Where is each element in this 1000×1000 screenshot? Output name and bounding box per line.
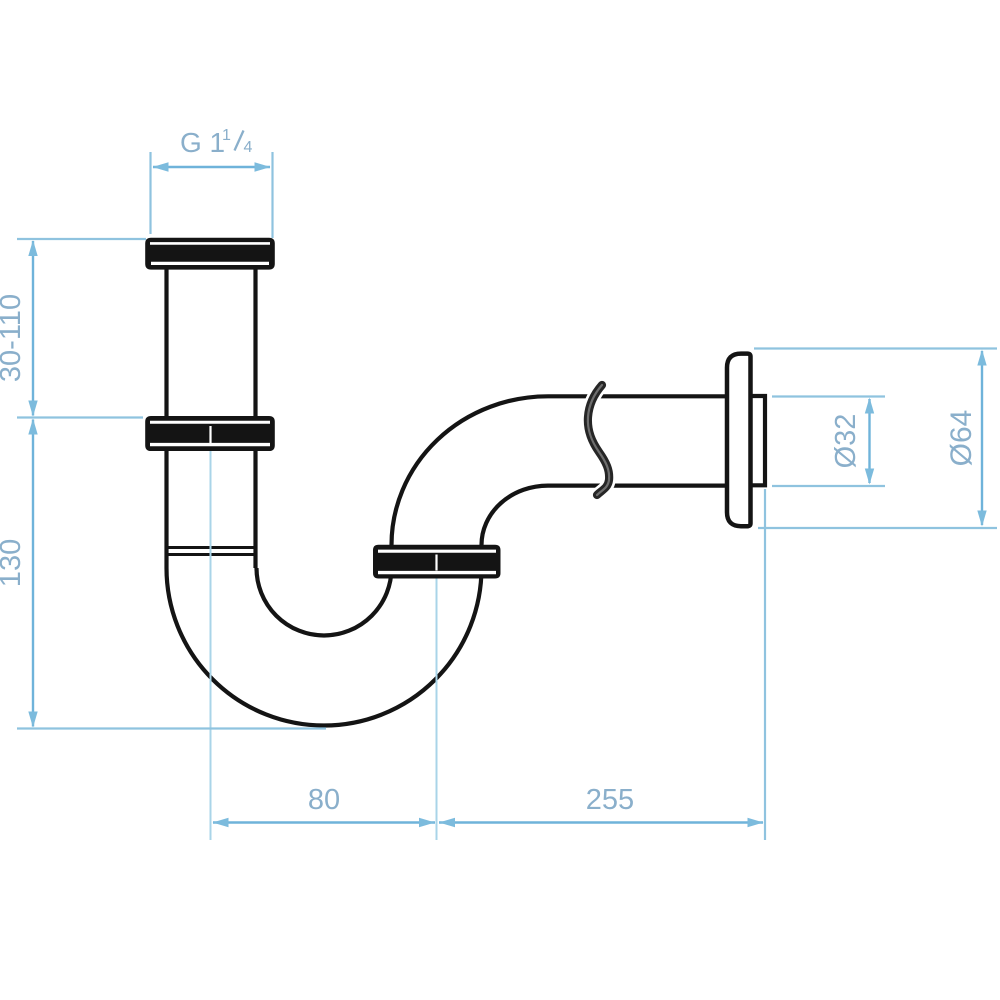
svg-text:80: 80 [308, 784, 340, 816]
svg-text:30-110: 30-110 [0, 294, 27, 382]
svg-text:Ø64: Ø64 [945, 410, 978, 467]
svg-text:4: 4 [244, 139, 253, 156]
svg-text:130: 130 [0, 539, 27, 587]
svg-text:1: 1 [222, 127, 231, 144]
svg-text:255: 255 [586, 784, 634, 816]
svg-text:G 1: G 1 [180, 127, 225, 158]
svg-text:Ø32: Ø32 [830, 414, 862, 469]
